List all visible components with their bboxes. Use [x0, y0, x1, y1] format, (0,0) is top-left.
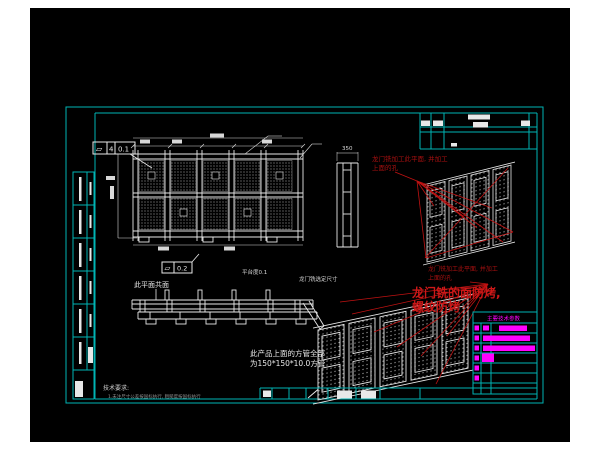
red-annotation-top-line2: 上面的孔: [372, 163, 399, 172]
fcf1-value: 0.1: [118, 146, 129, 154]
gantry-dim-label: 龙门铣选定尺寸: [299, 275, 338, 283]
red-annotation-mid-line2: 上面的孔: [428, 274, 452, 282]
fcf2-value: 0.2: [177, 265, 187, 273]
cad-drawing: ▱ 4 0.1 ▱ 0.2: [0, 0, 600, 450]
platform-label: 平台度0.1: [242, 268, 267, 276]
parameter-table-title: 主要技术参数: [487, 315, 521, 323]
tech-requirements-title: 技术要求:: [103, 384, 129, 392]
coplanar-label: 此平面共面: [134, 280, 169, 289]
highlight-note-line2: 螺纹防烤: [412, 299, 460, 314]
fcf1-datum: 4: [109, 146, 114, 154]
flatness-symbol-icon: ▱: [96, 145, 103, 154]
flatness-symbol-icon: ▱: [165, 264, 171, 273]
red-annotation-mid-line1: 龙门铣加工此平面, 并加工: [428, 265, 498, 273]
tech-requirements-line1: 1.未注尺寸公差按国标执行, 粗糙度按国标执行: [108, 393, 201, 400]
red-annotation-top-line1: 龙门铣加工此平面, 并加工: [372, 154, 448, 163]
square-tube-note-line1: 此产品上面的方管全部: [250, 348, 325, 358]
cad-drawing-viewport: ▱ 4 0.1 ▱ 0.2: [0, 0, 600, 450]
side-view-dim-label: 350: [342, 146, 353, 152]
highlight-note-line1: 龙门铣的面防烤,: [412, 285, 501, 300]
square-tube-note-line2: 为150*150*10.0方管: [250, 358, 326, 368]
